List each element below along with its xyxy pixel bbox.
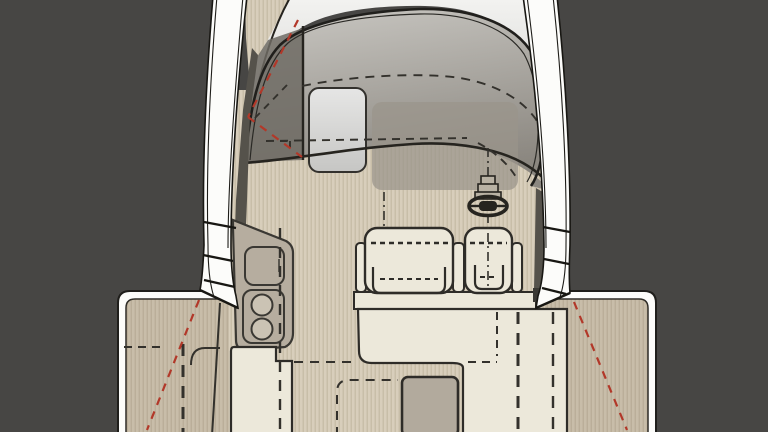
galley-burner-fore: [252, 295, 273, 316]
bench-armrest-middle: [453, 243, 464, 292]
boat-deck-plan: [0, 0, 768, 432]
galley-burner-aft: [252, 319, 273, 340]
cabin-door: [309, 88, 366, 172]
seat-base: [354, 292, 536, 309]
helm-seat-armrest: [512, 243, 522, 292]
deck-plan-canvas: [0, 0, 768, 432]
deck-hatch: [402, 377, 458, 432]
companion-bench-seat: [365, 228, 453, 293]
galley-unit: [233, 220, 293, 350]
helm-wheel-hub: [479, 201, 497, 211]
cockpit-seating: [354, 228, 536, 309]
